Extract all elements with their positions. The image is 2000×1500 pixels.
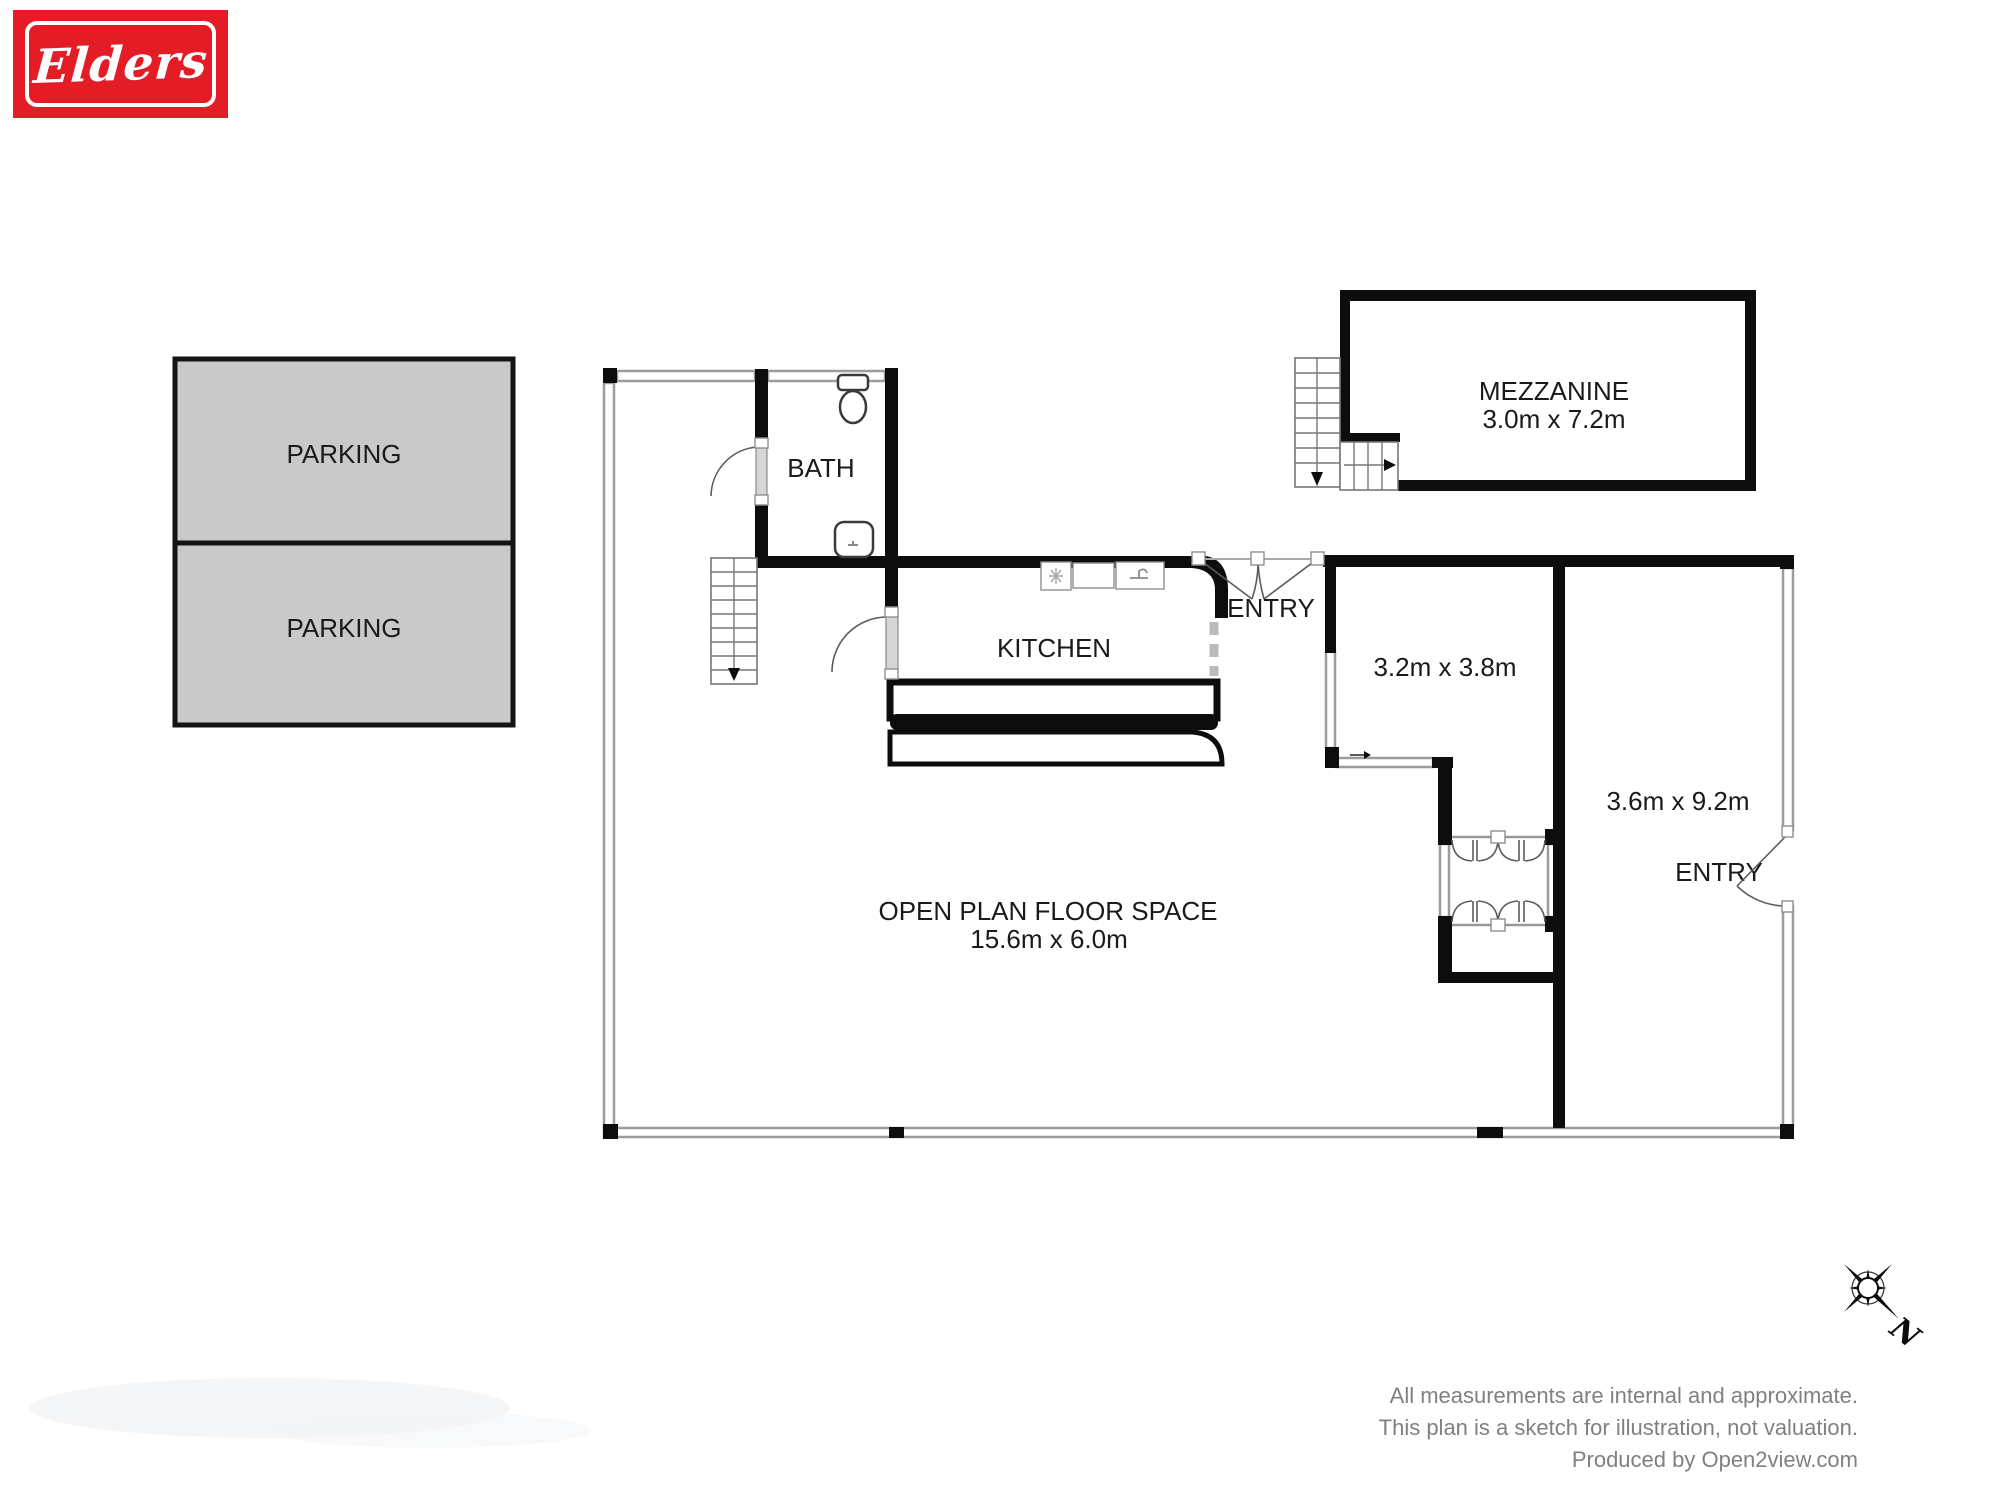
footer-line-1: All measurements are internal and approx… [1379, 1380, 1858, 1412]
lower-stairs [711, 558, 757, 684]
floorplan-drawing: PARKING PARKING [0, 0, 2000, 1500]
bathroom: BATH [787, 375, 873, 557]
wall-bath-west-upper [755, 369, 768, 444]
wall-north-east-wing [1323, 555, 1782, 567]
window-east-lower [1783, 906, 1793, 1127]
room-b: 3.6m x 9.2m ENTRY [1606, 786, 1793, 912]
wall-bath-east [885, 368, 898, 615]
wall-room-a-west-upper [1325, 567, 1336, 653]
mezzanine: MEZZANINE 3.0m x 7.2m [1295, 290, 1756, 491]
kitchen-bench-lower [890, 732, 1222, 764]
kitchen-door [832, 607, 898, 679]
compass-north-label: N [1882, 1310, 1927, 1356]
wall-room-a-sw-corner [1325, 747, 1339, 768]
post-vestibule-sw [1438, 916, 1452, 932]
watermark-smudge [30, 1378, 590, 1448]
stove-burner-icon [1049, 568, 1063, 584]
mezz-wall-south [1398, 480, 1756, 491]
wall-post-ne [1780, 555, 1794, 569]
kitchen-sink-box [1116, 562, 1164, 589]
window-south [604, 1128, 1790, 1137]
mezzanine-dims: 3.0m x 7.2m [1482, 404, 1625, 434]
kitchen-bench-upper [890, 682, 1217, 718]
bath-label: BATH [787, 453, 854, 483]
mezz-wall-north [1340, 290, 1756, 301]
parking-label-1: PARKING [286, 439, 401, 469]
compass-icon: N [1844, 1264, 1927, 1356]
post-vestibule-ne [1545, 829, 1565, 845]
window-east-upper [1783, 568, 1793, 830]
mezzanine-label: MEZZANINE [1479, 376, 1629, 406]
entry-top-label: ENTRY [1227, 593, 1315, 623]
window-room-a-west [1326, 651, 1335, 748]
opening-room-a-south [1336, 758, 1433, 767]
bath-door [711, 438, 768, 505]
mezz-landing-cap [1340, 433, 1400, 442]
bath-sink [835, 522, 873, 557]
footer-line-2: This plan is a sketch for illustration, … [1379, 1412, 1858, 1444]
room-a: 3.2m x 3.8m [1350, 652, 1517, 759]
window-west [604, 383, 614, 1127]
wall-post-sw [603, 1124, 618, 1139]
wall-hall-west-upper [1438, 767, 1452, 831]
wall-lobby-south [1438, 972, 1565, 983]
wall-divider-rooms [1553, 567, 1565, 1128]
vestibule-frame-left [1440, 844, 1449, 917]
floorplan-page: Elders PARKING PARKING [0, 0, 2000, 1500]
room-b-dims: 3.6m x 9.2m [1606, 786, 1749, 816]
kitchen-label: KITCHEN [997, 633, 1111, 663]
mezz-wall-east [1745, 290, 1756, 491]
parking-label-2: PARKING [286, 613, 401, 643]
post-vestibule-se [1545, 916, 1565, 932]
toilet-tank [838, 375, 868, 390]
kitchen-wall-bar [890, 714, 1218, 730]
kitchen: KITCHEN [890, 562, 1222, 764]
open-plan-label: OPEN PLAN FLOOR SPACE [878, 896, 1217, 926]
open-plan: OPEN PLAN FLOOR SPACE 15.6m x 6.0m [878, 896, 1217, 954]
parking-area: PARKING PARKING [175, 359, 513, 725]
footer-line-3: Produced by Open2view.com [1379, 1444, 1858, 1476]
wall-room-a-south-post [1432, 757, 1453, 768]
window-top-left [617, 371, 755, 381]
post-vestibule-nw [1438, 829, 1452, 845]
wall-post-south-2 [1477, 1127, 1503, 1138]
footer-disclaimer: All measurements are internal and approx… [1379, 1380, 1858, 1476]
wall-post-south-1 [889, 1127, 904, 1138]
vestibule-doors [1452, 831, 1545, 931]
open-plan-dims: 15.6m x 6.0m [970, 924, 1128, 954]
toilet-bowl [840, 391, 866, 423]
counter-box [1073, 563, 1114, 588]
wall-post-nw [603, 368, 617, 383]
mezz-wall-west [1340, 290, 1350, 442]
wall-post-se [1780, 1124, 1794, 1139]
room-a-dims: 3.2m x 3.8m [1373, 652, 1516, 682]
